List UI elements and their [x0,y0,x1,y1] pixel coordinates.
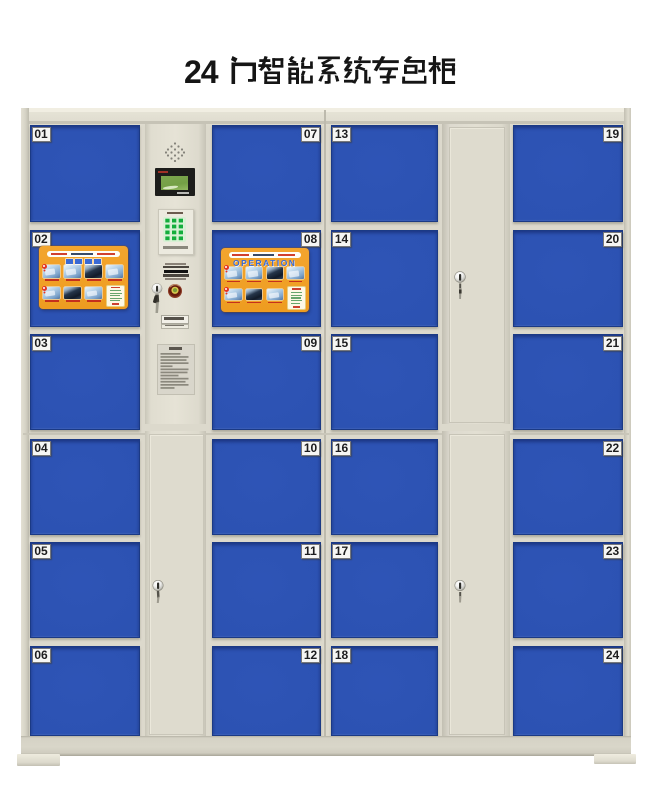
svg-text:24: 24 [184,54,219,88]
